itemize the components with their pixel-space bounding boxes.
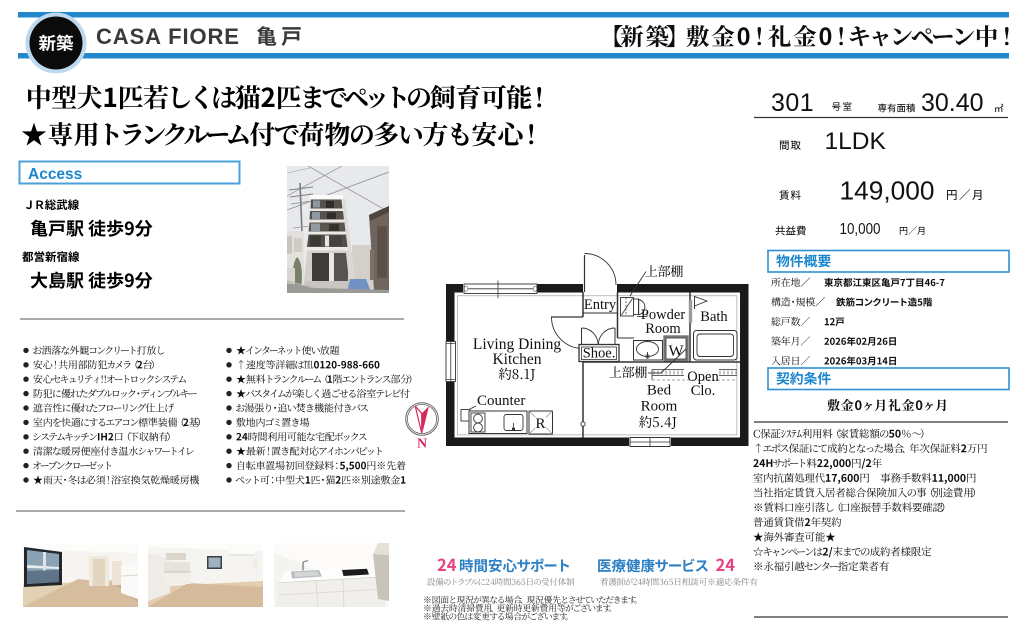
svg-text:1LDK: 1LDK [825,128,887,155]
svg-text:CASA FIORE: CASA FIORE [96,24,240,49]
svg-text:R: R [535,416,545,432]
svg-text:Kitchen: Kitchen [492,351,541,368]
svg-text:149,000: 149,000 [840,176,935,206]
svg-text:Clo.: Clo. [691,383,716,399]
svg-text:Room: Room [645,321,681,337]
svg-text:Counter: Counter [477,393,525,409]
svg-text:Entry: Entry [584,297,617,313]
svg-text:Access: Access [28,166,82,183]
svg-text:W: W [668,343,684,360]
svg-text:10,000: 10,000 [840,221,881,238]
svg-text:Room: Room [641,399,678,415]
svg-text:Bath: Bath [700,309,728,325]
svg-text:Shoe.: Shoe. [583,346,616,362]
svg-text:Bed: Bed [647,383,672,399]
svg-text:30.40: 30.40 [921,89,984,117]
svg-text:301: 301 [771,89,814,117]
svg-text:N: N [417,437,427,452]
